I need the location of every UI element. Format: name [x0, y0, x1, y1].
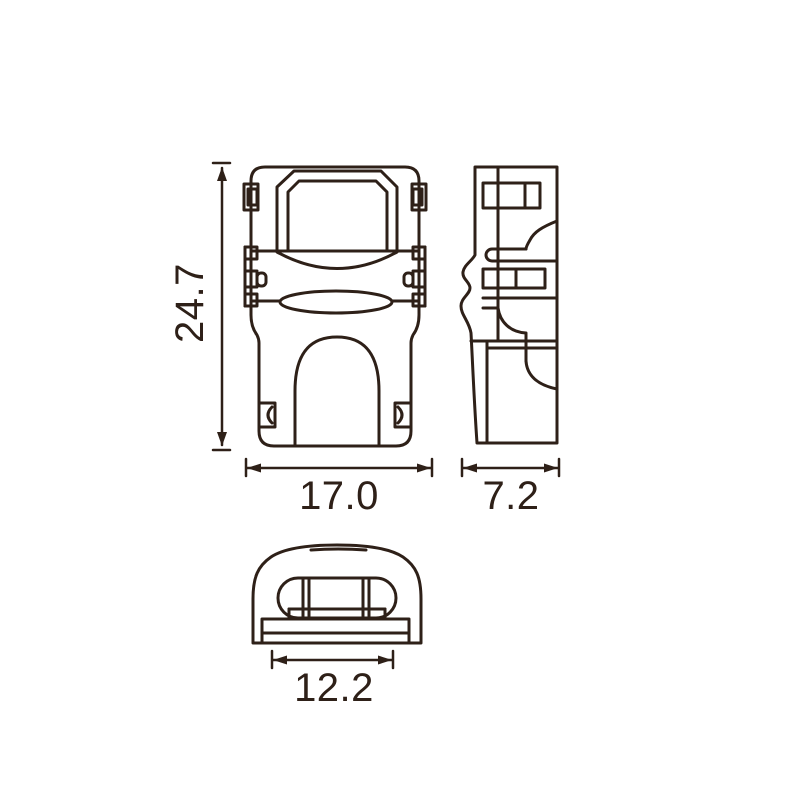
front-lens — [280, 291, 392, 313]
arrowhead-down — [217, 432, 227, 446]
drawing-root: 24.7 17.0 7.2 12.2 — [168, 163, 559, 710]
bottom-base — [262, 619, 409, 643]
front-cable-arch — [295, 337, 379, 446]
arrowhead-left — [273, 656, 287, 665]
front-bottom-clip-right — [395, 403, 411, 427]
side-top-latch — [483, 183, 540, 208]
front-flap-arc — [277, 252, 397, 269]
side-inner-curve-lower — [526, 361, 557, 389]
arrowhead-right — [378, 656, 392, 665]
side-view — [461, 167, 557, 443]
width-dimension-label: 17.0 — [299, 474, 379, 518]
arrowhead-left — [463, 464, 477, 473]
bottom-view — [253, 545, 421, 643]
dimension-height — [213, 163, 230, 450]
arrowhead-right — [417, 464, 431, 473]
arrowhead-up — [217, 167, 227, 181]
front-latch-rail-left — [245, 247, 266, 306]
arrowhead-left — [247, 464, 261, 473]
bottom-strip-slot — [278, 578, 396, 619]
side-inner-curve-upper — [498, 308, 526, 361]
side-middle-latch — [483, 269, 545, 288]
technical-drawing-page: 24.7 17.0 7.2 12.2 — [0, 0, 800, 800]
technical-drawing-canvas: 24.7 17.0 7.2 12.2 — [0, 0, 800, 800]
side-upper-curve — [526, 221, 557, 249]
bottom-dome-inner-arc — [311, 549, 366, 550]
depth-dimension-label: 7.2 — [482, 474, 539, 518]
base-width-dimension-label: 12.2 — [294, 666, 374, 710]
front-latch-rail-right — [404, 247, 425, 306]
arrowhead-right — [544, 464, 558, 473]
front-bottom-clip-left — [259, 403, 275, 427]
front-view — [244, 167, 426, 446]
front-window-inner — [288, 181, 387, 251]
height-dimension-label: 24.7 — [168, 263, 212, 343]
